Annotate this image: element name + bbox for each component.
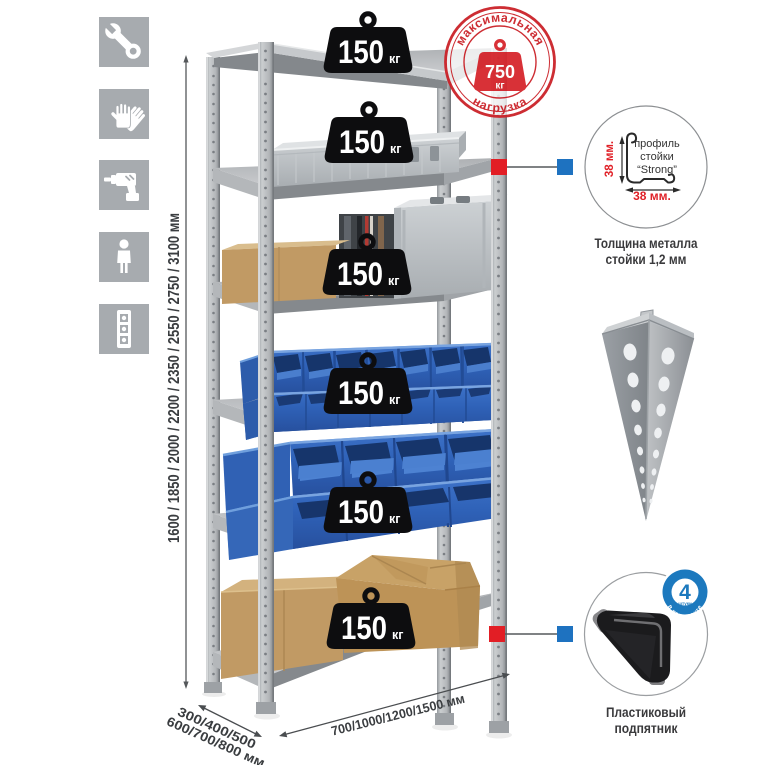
svg-text:кг: кг	[495, 81, 504, 92]
svg-text:“Strong”: “Strong”	[637, 164, 677, 176]
svg-text:стойки 1,2 мм: стойки 1,2 мм	[606, 252, 687, 267]
svg-text:стойки: стойки	[640, 151, 674, 163]
svg-text:1600 / 1850 / 2000 / 2200 / 23: 1600 / 1850 / 2000 / 2200 / 2350 / 2550 …	[166, 213, 183, 543]
svg-text:750: 750	[485, 62, 515, 82]
svg-text:профиль: профиль	[634, 138, 680, 150]
svg-text:штуки: штуки	[678, 601, 692, 606]
svg-text:38 мм.: 38 мм.	[604, 141, 616, 177]
svg-text:подпятник: подпятник	[615, 721, 678, 736]
svg-text:38 мм.: 38 мм.	[633, 189, 671, 203]
svg-text:Толщина металла: Толщина металла	[595, 236, 698, 251]
svg-text:Пластиковый: Пластиковый	[606, 705, 686, 720]
